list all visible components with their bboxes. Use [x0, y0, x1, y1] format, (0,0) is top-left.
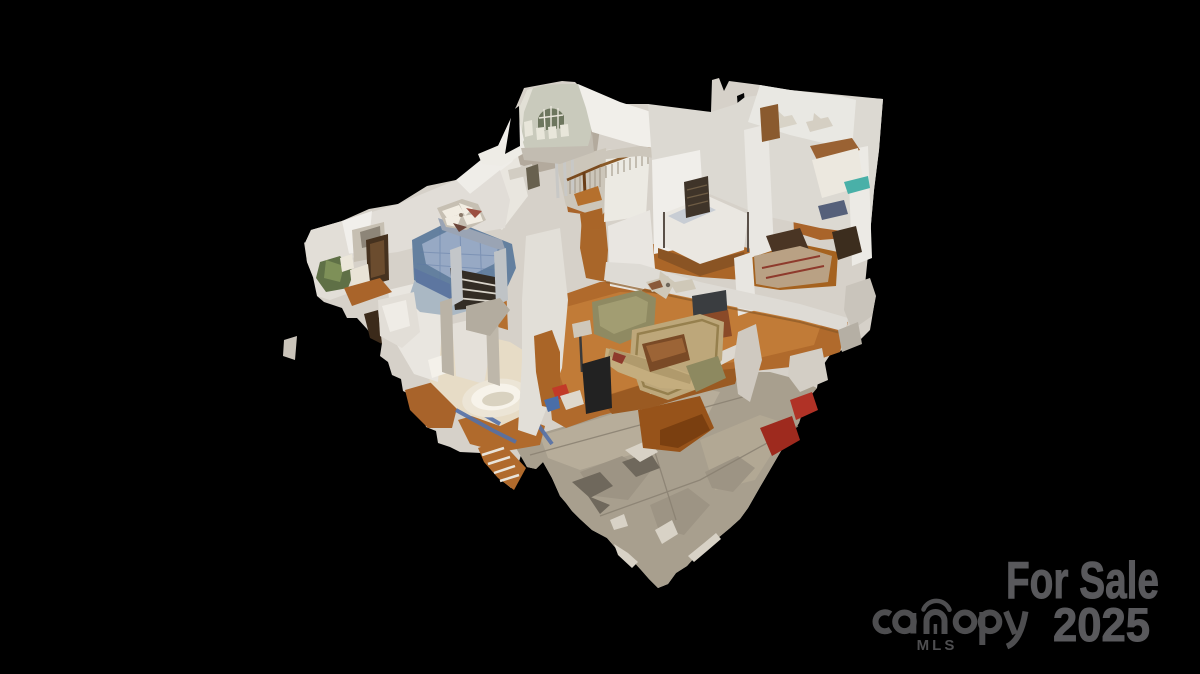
svg-text:2025: 2025 [1053, 598, 1150, 651]
svg-text:MLS: MLS [917, 637, 958, 654]
